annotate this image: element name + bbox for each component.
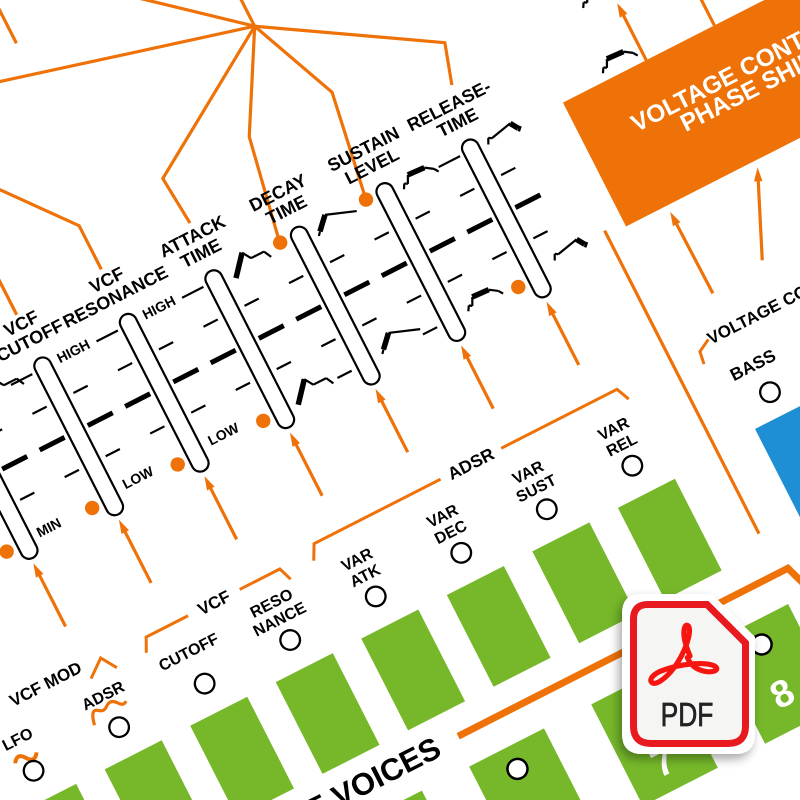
svg-text:PDF: PDF [661, 697, 714, 733]
